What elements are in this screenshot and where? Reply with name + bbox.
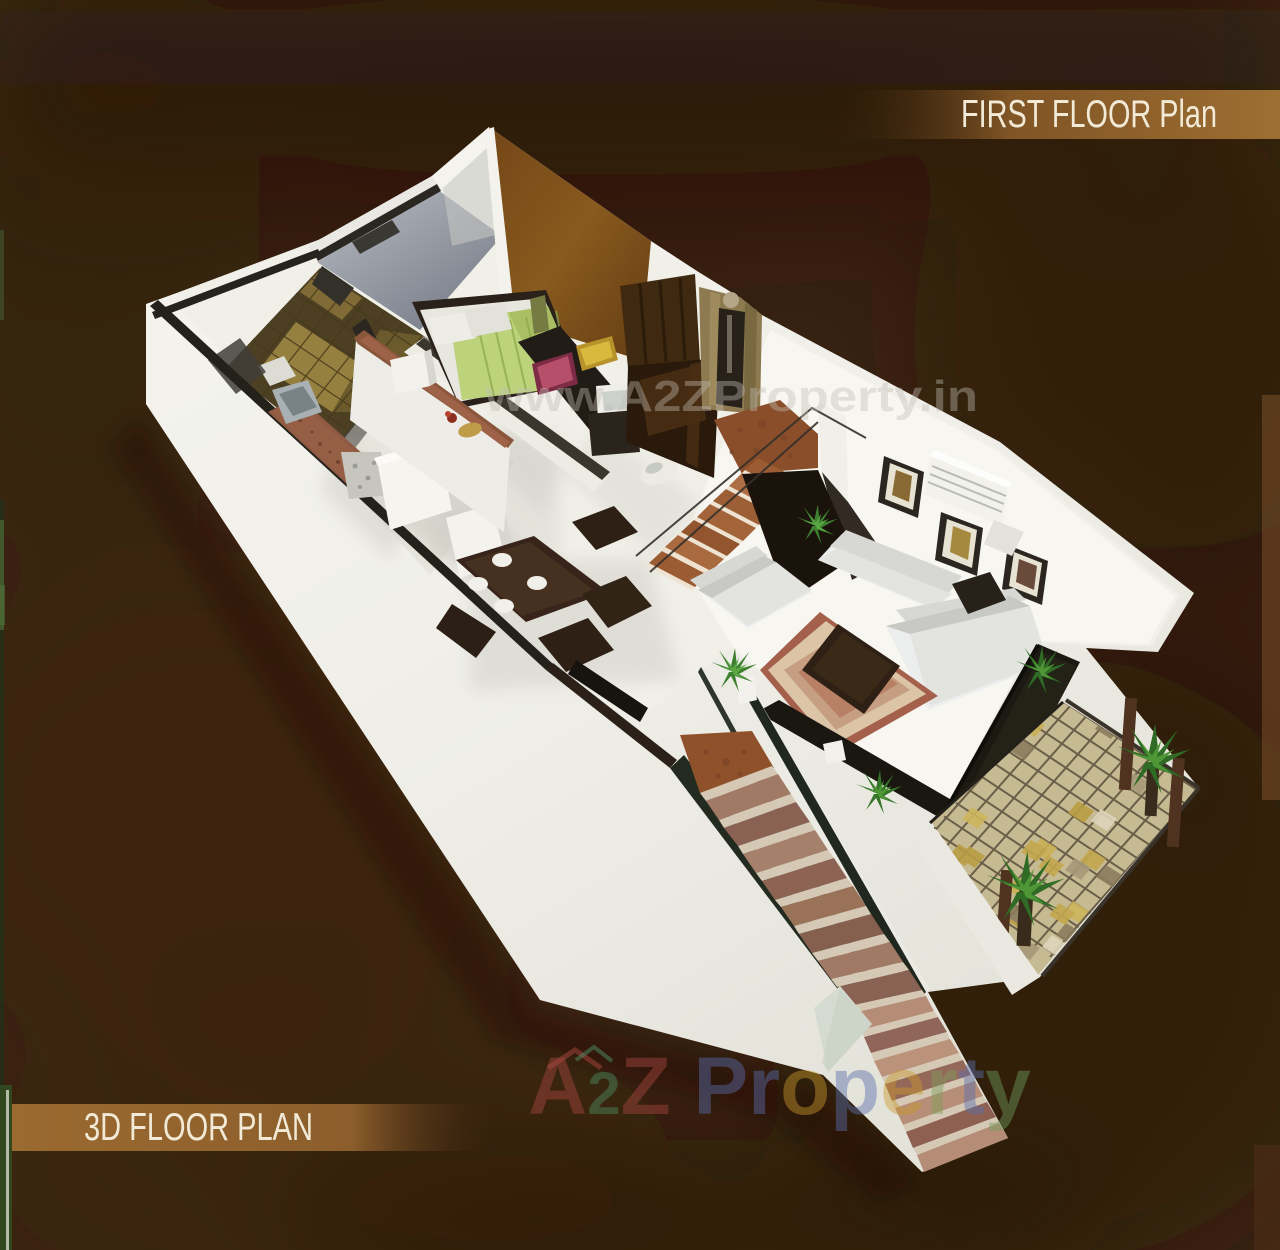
svg-text:www.A2ZProperty.in: www.A2ZProperty.in xyxy=(484,372,978,421)
svg-text:FIRST FLOOR Plan: FIRST FLOOR Plan xyxy=(961,93,1217,136)
svg-text:3D FLOOR PLAN: 3D FLOOR PLAN xyxy=(84,1106,313,1149)
